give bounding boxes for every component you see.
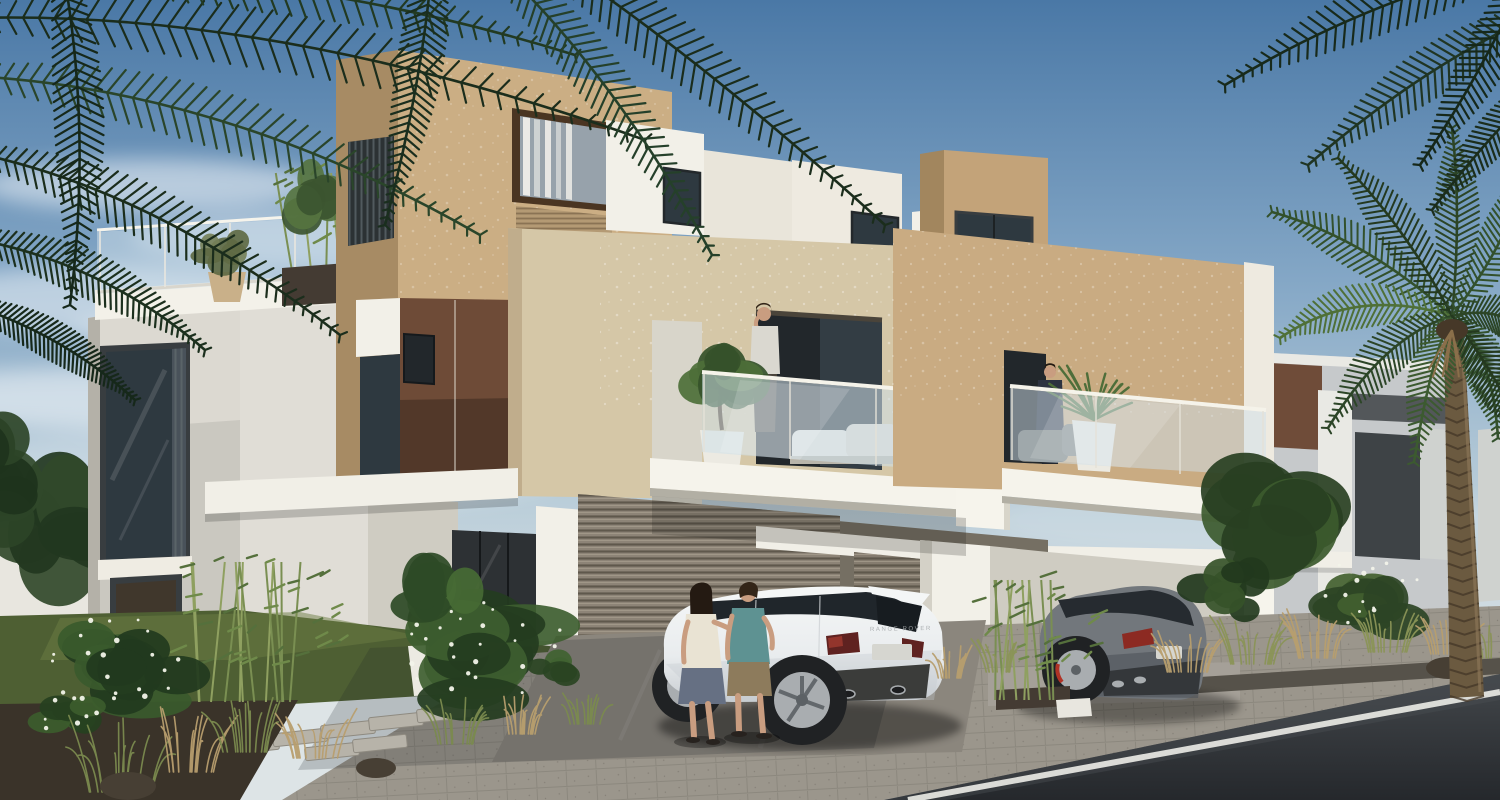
flower: [79, 634, 83, 638]
flower: [142, 693, 148, 699]
flower: [466, 671, 470, 675]
flower: [521, 691, 524, 694]
villa-rendering: RANGE ROVER: [0, 0, 1500, 800]
rock: [100, 772, 156, 800]
flower: [1361, 571, 1366, 576]
flower: [1346, 621, 1349, 624]
flower: [94, 711, 99, 716]
flower: [414, 622, 419, 627]
flower: [479, 643, 482, 646]
flower: [51, 660, 54, 663]
neighbor-window-opening: [1355, 432, 1420, 560]
man-shoe: [756, 733, 772, 739]
evoque-taillight-accent: [828, 636, 843, 648]
far-right-building: [1478, 428, 1500, 602]
flower: [163, 668, 167, 672]
flower: [1358, 610, 1361, 613]
flower: [439, 626, 442, 629]
small-window: [404, 334, 434, 384]
evoque-hub: [796, 694, 808, 706]
flower: [167, 687, 170, 690]
flower: [473, 659, 478, 664]
flower: [553, 644, 557, 648]
flower: [450, 610, 453, 613]
flower: [80, 696, 85, 701]
flower: [1361, 600, 1364, 603]
white-parapet-box: [704, 150, 794, 244]
flower: [459, 617, 462, 620]
flower: [1416, 578, 1419, 581]
suv-hub: [1071, 665, 1081, 675]
man-shoe: [731, 731, 747, 737]
shade-box: [356, 298, 400, 357]
plumeria-center: [417, 677, 529, 721]
flower: [424, 637, 428, 641]
leafy-tree-small: [1204, 581, 1245, 614]
flower: [449, 642, 454, 647]
flower: [558, 628, 561, 631]
leafy-tree: [1260, 479, 1331, 536]
plumeria-center: [447, 633, 510, 676]
flower: [491, 608, 494, 611]
flower: [44, 726, 48, 730]
flower: [84, 714, 88, 718]
flower: [112, 696, 116, 700]
flower: [1343, 593, 1347, 597]
flower: [88, 618, 93, 623]
terrace-bamboo-foliage: [296, 182, 325, 215]
flower: [75, 720, 80, 725]
flower: [176, 657, 180, 661]
flower: [61, 690, 65, 694]
flower: [53, 698, 58, 703]
potted-tree: [402, 553, 445, 610]
plumeria-left: [86, 648, 146, 686]
flower: [86, 651, 91, 656]
flower: [108, 619, 111, 622]
potted-tree: [446, 568, 483, 614]
flower: [452, 655, 455, 658]
tan-window-glass: [520, 116, 610, 205]
flower: [480, 623, 485, 628]
flower: [409, 661, 414, 666]
flower: [482, 601, 485, 604]
bamboo-stem: [995, 580, 996, 700]
flower: [44, 718, 47, 721]
evoque-exhaust: [891, 686, 905, 694]
flower: [1338, 564, 1341, 567]
dark-glazing: [360, 354, 400, 484]
neighbor-side-panel: [1420, 428, 1448, 560]
rendering-stage: RANGE ROVER: [0, 0, 1500, 800]
flower: [1401, 579, 1404, 582]
leafy-tree-small: [1221, 561, 1254, 583]
hedge: [543, 661, 577, 682]
woman-skirt: [678, 668, 726, 704]
beige-edge: [508, 228, 522, 496]
flower: [474, 676, 478, 680]
wheel-stop: [1056, 698, 1092, 718]
flower: [105, 675, 110, 680]
flower: [101, 652, 106, 657]
suv-exhaust: [1112, 681, 1124, 688]
flower: [1385, 562, 1389, 566]
flower: [52, 653, 55, 656]
rock: [356, 758, 396, 778]
flower: [114, 691, 118, 695]
flower: [514, 639, 517, 642]
flower: [114, 638, 120, 644]
flower: [520, 664, 525, 669]
man-shorts: [727, 662, 772, 696]
evoque-tailgate-lettering: RANGE ROVER: [870, 626, 932, 633]
flower: [1372, 607, 1375, 610]
flower: [137, 619, 140, 622]
evoque-plate: [872, 644, 912, 660]
flower: [1324, 594, 1328, 598]
flower: [150, 653, 154, 657]
flower: [521, 623, 525, 627]
window-louver-texture: [172, 348, 186, 557]
woman-shoe: [686, 737, 700, 743]
suv-exhaust: [1134, 677, 1146, 684]
flower: [72, 696, 76, 700]
flower: [146, 630, 149, 633]
man2-head: [1044, 366, 1056, 378]
flower: [449, 686, 454, 691]
flower: [415, 677, 418, 680]
flower: [1354, 578, 1359, 583]
woman-shoe: [706, 739, 720, 745]
flower: [1371, 567, 1375, 571]
flower: [410, 633, 413, 636]
flower: [137, 687, 141, 691]
